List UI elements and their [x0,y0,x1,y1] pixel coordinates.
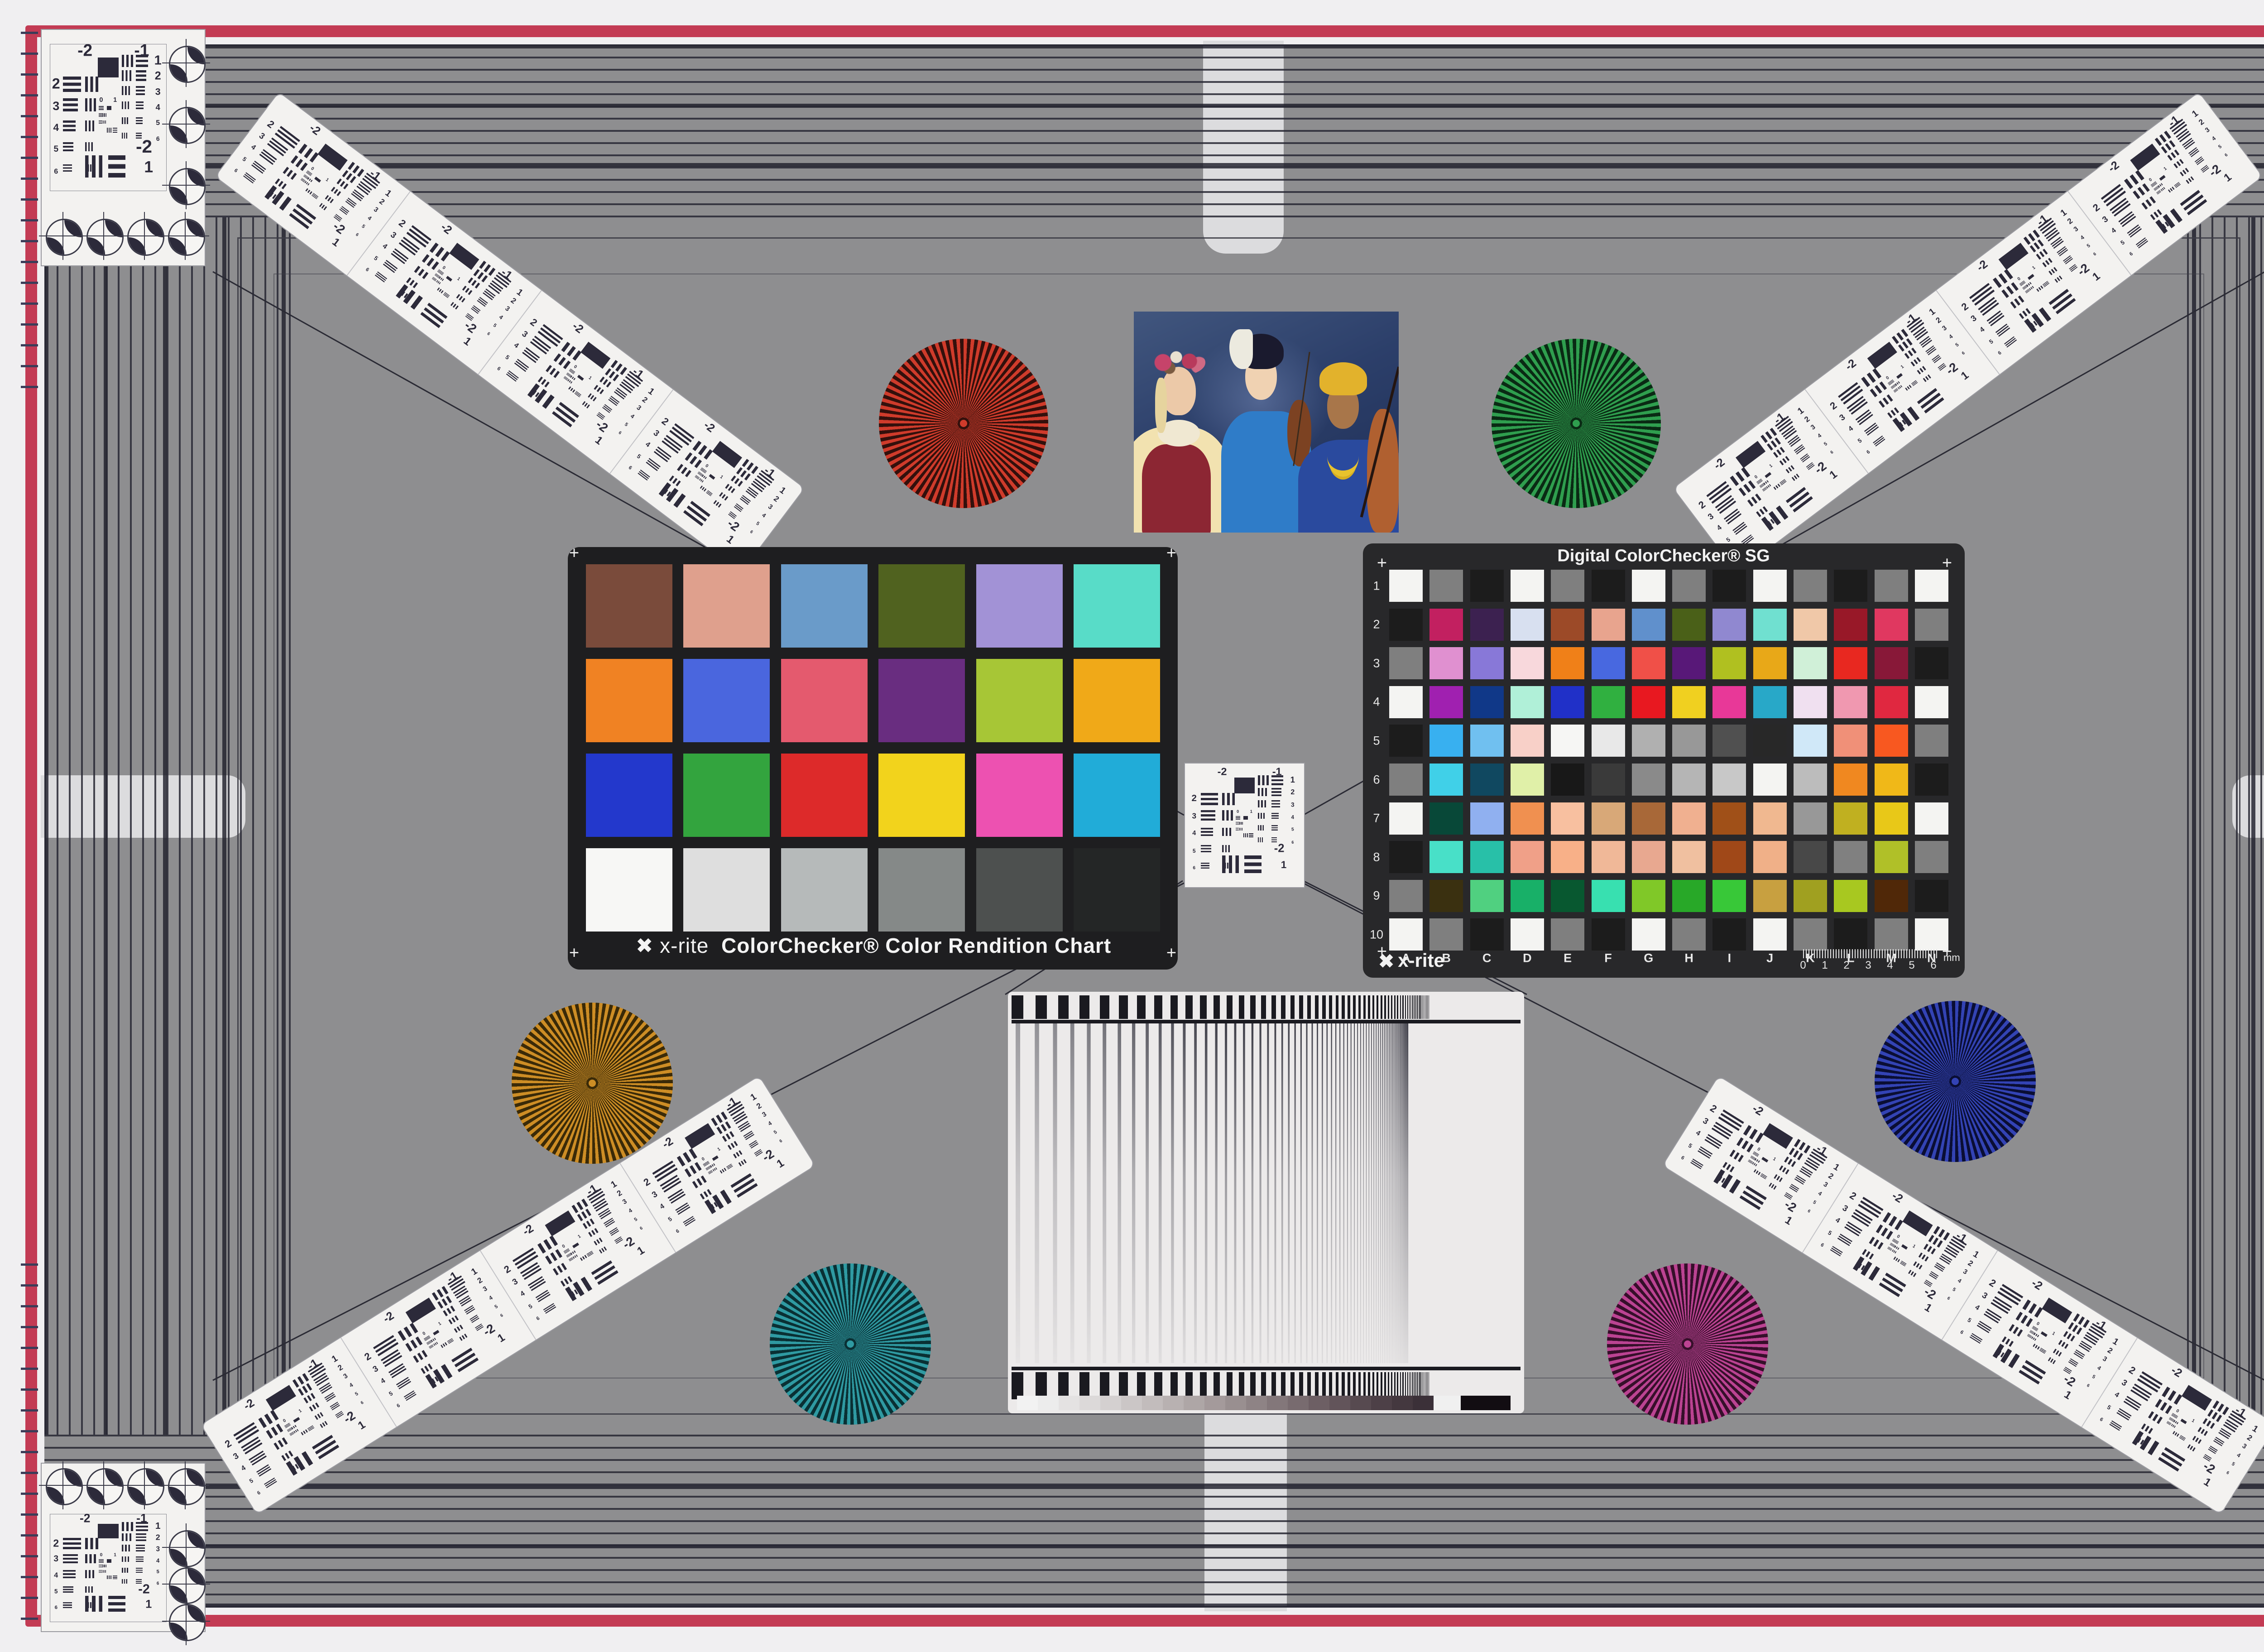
usaf-vbar-group [1904,348,1917,359]
usaf-left-number: 4 [1834,1216,1842,1225]
usaf-right-number: 6 [639,1225,643,1231]
usaf-center-hbars [2025,289,2030,293]
comb-bar [1381,1372,1382,1399]
usaf-right-number: 3 [1291,802,1295,808]
usaf-vbar-group [582,401,590,408]
gray-step-14 [1288,1396,1309,1410]
usaf-black-square [2182,1385,2212,1411]
usaf-label-minus2: -2 [660,1135,675,1152]
usaf-hbar-group [1201,828,1213,836]
usaf-center-square [293,1417,300,1423]
usaf-target-area: -2-12345612345601-21 [50,1514,167,1622]
sg-row-label: 3 [1373,656,1380,670]
sg-patch-G10 [1632,918,1665,951]
usaf-left-number: 3 [650,1189,659,1200]
usaf-center-hbars [99,1570,102,1572]
usaf-right-number: 1 [1971,1249,1981,1260]
sg-patch-K9 [1794,880,1827,912]
fiducial-quadrant-sw [88,237,105,255]
fiducial-quadrant-ne [187,220,204,237]
comb-bar [1407,995,1408,1019]
usaf-hbar-group [63,1570,76,1578]
sg-patch-M9 [1875,880,1908,912]
sg-patch-B10 [1429,918,1463,951]
cc-patch-3 [781,564,868,648]
usaf-right-number: 3 [156,1545,160,1553]
usaf-right-number: 6 [1291,840,1294,845]
usaf-left-number: 2 [1987,1277,1998,1290]
usaf-hbar-group [2116,1408,2131,1421]
comb-bar [1417,1372,1418,1399]
usaf-bottom-minus2: -2 [331,219,348,237]
sg-patch-N4 [1915,686,1948,718]
usaf-right-number: 5 [354,1391,360,1397]
corner-target-bottom-left: -2-12345612345601-21 [41,1463,206,1632]
usaf-hbar-group [1724,509,1741,524]
sg-patch-C3 [1470,647,1504,679]
usaf-bottom-hbars [108,155,125,177]
usaf-bottom-hbars [420,303,447,328]
usaf-center-vbars [1752,1162,1757,1167]
usaf-hbar-group [2194,156,2204,165]
usaf-hbar-group [136,86,145,95]
cc-patch-22 [878,848,965,932]
usaf-bottom-minus2: -2 [1812,459,1829,477]
usaf-right-number: 5 [1291,827,1294,832]
comb-bar [1402,995,1404,1019]
cc-patch-4 [878,564,965,648]
sg-patch-F2 [1592,609,1625,641]
usaf-right-number: 4 [629,413,636,420]
usaf-right-number: 3 [1822,1181,1829,1189]
comb-bar [1281,1372,1285,1399]
sweep-top-comb [1012,995,1521,1019]
sg-col-label: E [1564,951,1572,965]
usaf-vbar-group [2010,295,2024,308]
comb-bar [1410,995,1410,1019]
sg-patch-H6 [1672,764,1706,796]
sg-patch-A3 [1389,647,1423,679]
usaf-left-number: 6 [496,366,501,372]
sg-row-label: 6 [1373,773,1380,787]
sg-patch-G4 [1632,686,1665,718]
usaf-vbar-group [273,1437,288,1450]
usaf-right-number: 5 [494,1304,499,1310]
corner-tick-ruler [21,32,38,389]
sg-patch-M2 [1875,609,1908,641]
usaf-hbar-group [1271,813,1279,819]
usaf-left-number: 3 [53,99,59,113]
usaf-center-label-1: 1 [456,276,461,282]
usaf-vbar-group [448,1315,459,1324]
usaf-label-minus2: -2 [77,41,92,60]
sg-brand: ✖x-rite [1378,949,1444,971]
fiducial-quadrant-ne [187,1569,205,1586]
cc-patch-14 [683,754,770,837]
usaf-vbar-group [1876,1225,1893,1239]
usaf-hbar-group [1789,1184,1799,1192]
usaf-right-number: 5 [157,1569,159,1575]
comb-bar [1137,1372,1146,1399]
xrite-logo-icon: ✖ [636,934,654,957]
usaf-bottom-vbars [85,155,102,177]
usaf-vbar-group [319,203,327,210]
usaf-left-number: 4 [240,1464,247,1473]
usaf-left-number: 2 [659,415,671,428]
usaf-center-square [446,276,453,282]
usaf-right-number: 2 [2106,1345,2115,1355]
gray-step-3 [1059,1396,1079,1410]
sg-patch-E7 [1551,802,1584,835]
usaf-vbar-group [2042,258,2053,267]
usaf-center-label-1: 1 [587,375,592,381]
usaf-vbar-group [731,475,743,487]
sg-row-label: 2 [1373,618,1380,632]
usaf-left-number: 5 [53,144,58,154]
usaf-hbar-group [603,404,613,413]
usaf-hbar-group [646,458,661,471]
fiducial-quadrant-ne [187,47,205,64]
usaf-vbar-group [713,500,721,508]
usaf-vbar-group [1222,810,1233,821]
usaf-bottom-minus2: -2 [759,1146,777,1164]
sg-patch-M5 [1875,725,1908,757]
usaf-right-number: 2 [475,1276,484,1286]
usaf-vbar-group [122,1556,129,1562]
cc-patch-18 [1074,754,1160,837]
comb-bar [1036,1372,1047,1399]
fiducial-quadrant-sw [169,1487,187,1504]
sweep-bottom-line [1012,1367,1521,1370]
sg-patch-A2 [1389,609,1423,641]
comb-bar [1227,1372,1233,1399]
usaf-center-vbars [570,375,575,380]
usaf-hbar-group [2004,336,2017,348]
usaf-vbar-group [1222,845,1230,852]
usaf-hbar-group [1799,1166,1813,1177]
sg-title: Digital ColorChecker® SG [1557,547,1770,566]
sg-patch-N8 [1915,841,1948,873]
fiducial-crosshair-v [186,161,187,209]
fiducial-crosshair-v [62,1461,63,1509]
usaf-right-number: 6 [355,232,360,237]
colorchecker-sg-chart: 12345678910ABCDEFGHIJKLMN++++0123456mm [1363,543,1965,978]
usaf-center-label-0: 0 [441,265,446,271]
usaf-center-hbars [1249,833,1253,837]
usaf-bottom-1: 1 [2090,270,2103,283]
sg-patch-M7 [1875,802,1908,835]
gray-step-2 [1038,1396,1059,1410]
comb-bar [1012,995,1023,1019]
gray-step-1 [1017,1396,1038,1410]
usaf-hbar-group [1794,444,1805,455]
usaf-vbar-group [406,1336,423,1351]
cc-patch-16 [878,754,965,837]
usaf-center-hbars [1760,1173,1767,1179]
sg-patch-B7 [1429,802,1463,835]
usaf-right-number: 4 [2211,135,2217,142]
comb-bar [1425,1372,1425,1399]
usaf-left-number: 5 [1856,437,1863,444]
usaf-hbar-group [264,1478,277,1488]
fiducial-circle [127,1468,164,1505]
usaf-right-number: 3 [1941,325,1948,333]
usaf-vbar-group [2167,149,2179,161]
usaf-center-label-0: 0 [2175,1408,2180,1414]
sg-row-label: 7 [1373,812,1380,826]
comb-bar [1079,1372,1089,1399]
usaf-vbar-group [725,484,735,493]
sg-row-label: 1 [1373,579,1380,593]
usaf-vbar-group [1258,800,1266,807]
usaf-hbar-group [2127,225,2142,238]
usaf-right-number: 4 [1291,814,1294,820]
usaf-center-vbars [1895,381,1900,386]
sg-patch-F1 [1592,570,1625,602]
gray-step-white-end [1434,1396,1461,1410]
usaf-vbar-group [1258,788,1267,797]
usaf-center-vbars [2173,1431,2179,1437]
usaf-label-minus2: -2 [2106,158,2121,175]
usaf-hbar-group [63,77,81,92]
sg-patch-L1 [1834,570,1867,602]
usaf-center-hbars [447,1338,454,1344]
usaf-vbar-group [1792,474,1800,481]
usaf-right-number: 6 [1807,1209,1811,1214]
usaf-hbar-group [608,396,619,406]
sg-patch-A1 [1389,570,1423,602]
usaf-vbar-group [2197,1427,2208,1436]
usaf-hbar-group [2068,1358,2078,1367]
usaf-bottom-vbars [1992,1344,2019,1368]
usaf-hbar-group [63,1554,78,1564]
usaf-center-label-1: 1 [717,1147,722,1152]
usaf-bottom-minus2: -2 [2206,161,2224,179]
usaf-vbar-group [303,1393,316,1404]
usaf-center-label-0: 0 [422,1331,427,1336]
right-musician-necklace [1327,435,1359,477]
sg-patch-L3 [1834,647,1867,679]
usaf-left-number: 6 [1997,350,2002,356]
sg-patch-J10 [1753,918,1787,951]
usaf-hbar-group [1873,436,1885,447]
usaf-center-square [107,106,111,110]
usaf-right-number: 1 [154,53,162,68]
sg-patch-G1 [1632,570,1665,602]
usaf-label-minus2: -2 [80,1512,90,1526]
usaf-center-hbars [289,1432,294,1436]
usaf-vbar-group [692,1176,707,1188]
usaf-vbar-group [122,1568,128,1573]
sg-patch-I9 [1712,880,1746,912]
usaf-hbar-group [506,370,518,382]
usaf-center-square [2180,1419,2187,1425]
usaf-center-label-1: 1 [114,1552,116,1557]
sg-patch-B4 [1429,686,1463,718]
usaf-right-number: 4 [2096,1364,2102,1372]
usaf-vbar-group [1779,456,1789,466]
usaf-label-minus2: -2 [1711,456,1727,472]
usaf-center-hbars [1236,816,1240,820]
comb-bar [1377,995,1378,1019]
usaf-bottom-vbars [527,384,554,409]
usaf-right-number: 3 [1962,1268,1968,1276]
sg-mm-ruler [1803,949,1939,958]
usaf-left-number: 2 [362,1350,373,1363]
sg-col-label: D [1523,951,1532,965]
fiducial-quadrant-sw [88,1487,105,1504]
usaf-right-number: 3 [621,1198,628,1206]
sg-patch-I10 [1712,918,1746,951]
usaf-label-minus2: -2 [241,1396,257,1413]
fiducial-quadrant-sw [129,1487,146,1504]
usaf-center-vbars [1892,1249,1896,1253]
usaf-bottom-hbars [2158,1447,2185,1472]
sg-ruler-unit: mm [1943,952,1960,964]
usaf-vbar-group [283,167,297,180]
comb-bar [1261,995,1266,1019]
usaf-bottom-hbars [312,1435,339,1460]
usaf-vbar-group [2054,276,2063,283]
registration-plus: + [1166,544,1176,563]
fiducial-quadrant-ne [146,220,163,237]
sg-patch-K5 [1794,725,1827,757]
usaf-hbar-group [243,173,256,184]
usaf-right-number: 6 [2224,153,2229,158]
usaf-right-number: 3 [2072,226,2080,234]
usaf-right-number: 3 [761,1111,768,1119]
usaf-left-number: 6 [536,1316,541,1321]
usaf-right-number: 5 [156,119,160,127]
usaf-black-square [685,1124,715,1149]
usaf-right-number: 1 [2250,1423,2260,1435]
usaf-left-number: 4 [512,341,520,350]
usaf-right-number: 6 [486,331,491,336]
usaf-center-label-1: 1 [2031,265,2036,271]
usaf-center-hbars [1894,388,1899,393]
fiducial-quadrant-sw [170,1549,187,1566]
usaf-center-label-0: 0 [1885,375,1890,381]
usaf-right-number: 5 [633,1216,639,1222]
usaf-right-number: 6 [360,1400,365,1406]
usaf-left-number: 6 [55,1605,58,1610]
sg-patch-A8 [1389,841,1423,873]
comb-bar [1400,995,1401,1019]
usaf-vbar-group [459,1334,467,1341]
sg-patch-N5 [1915,725,1948,757]
comb-bar [1299,995,1303,1019]
usaf-center-hbars [587,1251,594,1257]
sg-patch-N7 [1915,802,1948,835]
comb-bar [1239,995,1244,1019]
usaf-hbar-group [514,359,529,372]
usaf-hbar-group [345,197,357,208]
gray-step-17 [1350,1396,1371,1410]
usaf-vbar-group [1923,1244,1936,1254]
usaf-center-label-1: 1 [1900,365,1905,370]
usaf-left-number: 5 [1827,1229,1833,1237]
usaf-bottom-1: 1 [1281,859,1287,871]
comb-bar [1227,995,1233,1019]
usaf-hbar-group [2079,1340,2092,1352]
usaf-vbar-group [85,142,93,151]
usaf-vbar-group [2001,283,2019,298]
sg-patch-J1 [1753,570,1787,602]
comb-bar [1429,1372,1429,1399]
gray-step-18 [1371,1396,1392,1410]
fiducial-crosshair-v [186,39,187,87]
sg-patch-H4 [1672,686,1706,718]
usaf-left-number: 5 [2119,239,2126,246]
usaf-center-label-0: 0 [701,1157,706,1162]
usaf-vbar-group [320,1421,328,1428]
comb-bar [1368,995,1370,1019]
sg-patch-C9 [1470,880,1504,912]
usaf-center-label-1: 1 [1250,809,1252,814]
usaf-hbar-group [1932,354,1942,363]
usaf-hbar-group [734,503,744,512]
usaf-left-number: 6 [256,1490,262,1496]
usaf-center-hbars [113,1575,117,1579]
usaf-center-vbars [2158,183,2163,188]
usaf-center-label-1: 1 [1772,1157,1777,1162]
usaf-center-label-1: 1 [1769,463,1774,469]
usaf-center-label-0: 0 [310,166,315,172]
usaf-vbar-group [468,277,480,288]
usaf-center-label-0: 0 [2148,178,2153,183]
usaf-right-number: 4 [761,512,767,519]
usaf-right-number: 2 [1827,1171,1835,1181]
sg-patch-M10 [1875,918,1908,951]
fiducial-crosshair-v [62,212,63,260]
portrait-photo [1134,312,1399,533]
sg-col-label: J [1766,951,1773,965]
usaf-vbar-group [85,1586,93,1593]
usaf-center-hbars [1236,828,1239,831]
usaf-center-hbars [429,1345,434,1349]
cc-patch-7 [586,659,672,742]
usaf-center-square [1896,373,1903,379]
colorchecker-label: ✖ x-rite ColorChecker® Color Rendition C… [636,933,1111,958]
usaf-center-vbars [437,287,444,293]
fiducial-quadrant-sw [170,125,187,143]
comb-bar [1405,995,1406,1019]
usaf-center-hbars [2174,182,2181,188]
sg-patch-L4 [1834,686,1867,718]
usaf-bottom-vbars [264,185,292,211]
usaf-center-hbars [99,106,103,110]
comb-bar [1200,1372,1207,1399]
usaf-center-label-1: 1 [577,1234,582,1239]
usaf-left-number: 6 [1866,449,1871,455]
cc-patch-5 [976,564,1063,648]
usaf-right-number: 2 [1803,414,1812,424]
usaf-hbar-group [63,1586,73,1593]
fiducial-crosshair-v [103,212,104,260]
usaf-vbar-group [422,255,439,270]
comb-bar [1424,1372,1424,1399]
usaf-center-square [1765,472,1772,478]
magenta-star-center-dot [1684,1340,1691,1348]
usaf-vbar-group [456,294,465,303]
usaf-right-number: 5 [755,521,760,527]
sg-patch-N9 [1915,880,1948,912]
usaf-hbar-group [251,161,266,174]
sg-patch-J6 [1753,764,1787,796]
usaf-right-number: 2 [772,494,781,504]
usaf-vbar-group [2180,168,2189,176]
grayscale-step-wedge [1017,1396,1515,1410]
